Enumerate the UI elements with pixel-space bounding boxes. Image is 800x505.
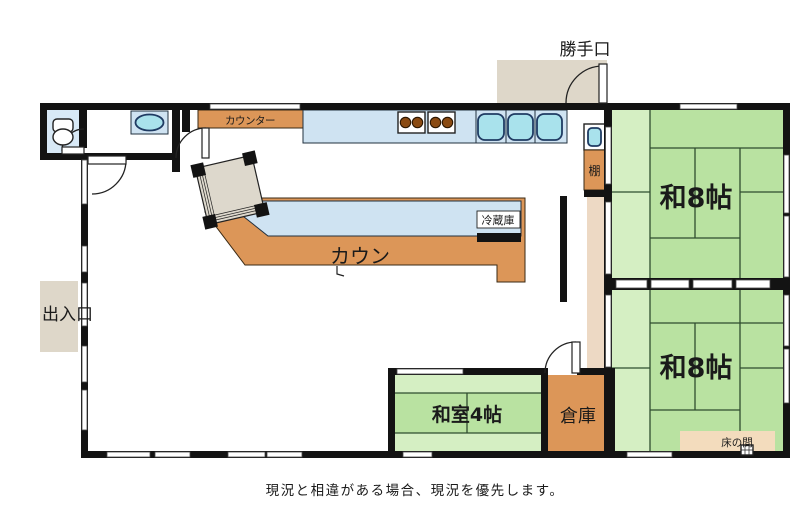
room8-lower-label: 和8帖 — [660, 353, 733, 384]
wall-bath-left — [40, 103, 47, 160]
fridge-divider-bar — [477, 233, 521, 242]
wall-top — [40, 103, 790, 110]
service-counter-top — [224, 201, 521, 236]
toilet-door-leaf — [62, 147, 84, 154]
large-counter-label: カウン — [330, 244, 390, 268]
bathroom-door-leaf — [88, 156, 126, 164]
bathtub — [136, 115, 164, 131]
sliding-door-room4 — [397, 369, 463, 374]
wall-storage-right — [608, 368, 615, 458]
wall-storage-top — [577, 368, 615, 375]
window-right-1 — [784, 155, 789, 213]
floor-plan-page: 勝手口 出入口 カウンター 冷蔵庫 棚 カウン 和8帖 和8帖 和室4帖 倉庫 … — [0, 0, 800, 505]
floor-plan-drawing: 勝手口 出入口 カウンター 冷蔵庫 棚 カウン 和8帖 和8帖 和室4帖 倉庫 … — [0, 0, 800, 505]
sink-1 — [478, 114, 504, 140]
room8-upper-light-column — [612, 110, 650, 278]
backdoor-label: 勝手口 — [560, 40, 611, 60]
wall-room4-left — [388, 368, 395, 458]
wall-shelf-bar — [584, 190, 605, 197]
wall-bath-right — [172, 103, 180, 172]
room8-upper-label: 和8帖 — [660, 183, 733, 214]
window-left-3 — [82, 346, 87, 382]
hand-sink-bowl — [588, 128, 601, 146]
window-right-2 — [784, 216, 789, 277]
window-bottom-4 — [267, 452, 302, 457]
window-bottom-room8 — [627, 452, 672, 457]
window-left-2 — [82, 246, 87, 272]
window-right-4 — [784, 349, 789, 403]
sliding-door-hall-room8u-2 — [606, 202, 612, 274]
sliding-door-hall-room8u-1 — [606, 127, 612, 184]
wall-kitchen-stub — [182, 110, 190, 132]
toilet-bowl — [53, 129, 73, 145]
room4-light-bottom — [395, 433, 541, 451]
sink-2 — [508, 114, 533, 140]
caption: 現況と相違がある場合、現況を優先します。 — [266, 483, 565, 499]
hallway-strip — [587, 197, 604, 370]
sliding-door-rooms-4 — [736, 280, 770, 288]
storage-door-leaf — [572, 342, 580, 373]
window-bottom-room4 — [403, 452, 432, 457]
backdoor-leaf — [599, 64, 607, 103]
window-top-kitchen — [210, 104, 300, 109]
shelf-label: 棚 — [588, 163, 600, 178]
room8-lower-light-column — [612, 290, 650, 451]
small-counter-label: カウンター — [225, 115, 275, 127]
window-bottom-2 — [155, 452, 190, 457]
entrance-label: 出入口 — [42, 305, 93, 325]
sink-3 — [537, 114, 562, 140]
tokonoma-label: 床の間 — [721, 436, 753, 449]
window-bottom-3 — [228, 452, 265, 457]
sliding-door-rooms-1 — [616, 280, 647, 288]
sink-units — [478, 114, 562, 140]
sliding-door-rooms-3 — [693, 280, 732, 288]
kitchen-door-leaf — [202, 128, 209, 158]
window-top-room8 — [680, 104, 737, 109]
room4-light-top — [395, 375, 541, 393]
window-left-4 — [82, 390, 87, 430]
storage-label: 倉庫 — [560, 406, 596, 427]
window-left-1 — [82, 160, 87, 204]
sliding-door-rooms-2 — [651, 280, 689, 288]
backdoor-porch — [497, 60, 607, 103]
window-bottom-1 — [107, 452, 150, 457]
fridge-label: 冷蔵庫 — [482, 213, 515, 227]
wall-room4-storage — [541, 368, 548, 458]
window-right-3 — [784, 295, 789, 346]
room4-label: 和室4帖 — [432, 403, 502, 426]
wall-freestanding — [560, 196, 567, 302]
sliding-door-hall-room8l — [606, 295, 612, 367]
